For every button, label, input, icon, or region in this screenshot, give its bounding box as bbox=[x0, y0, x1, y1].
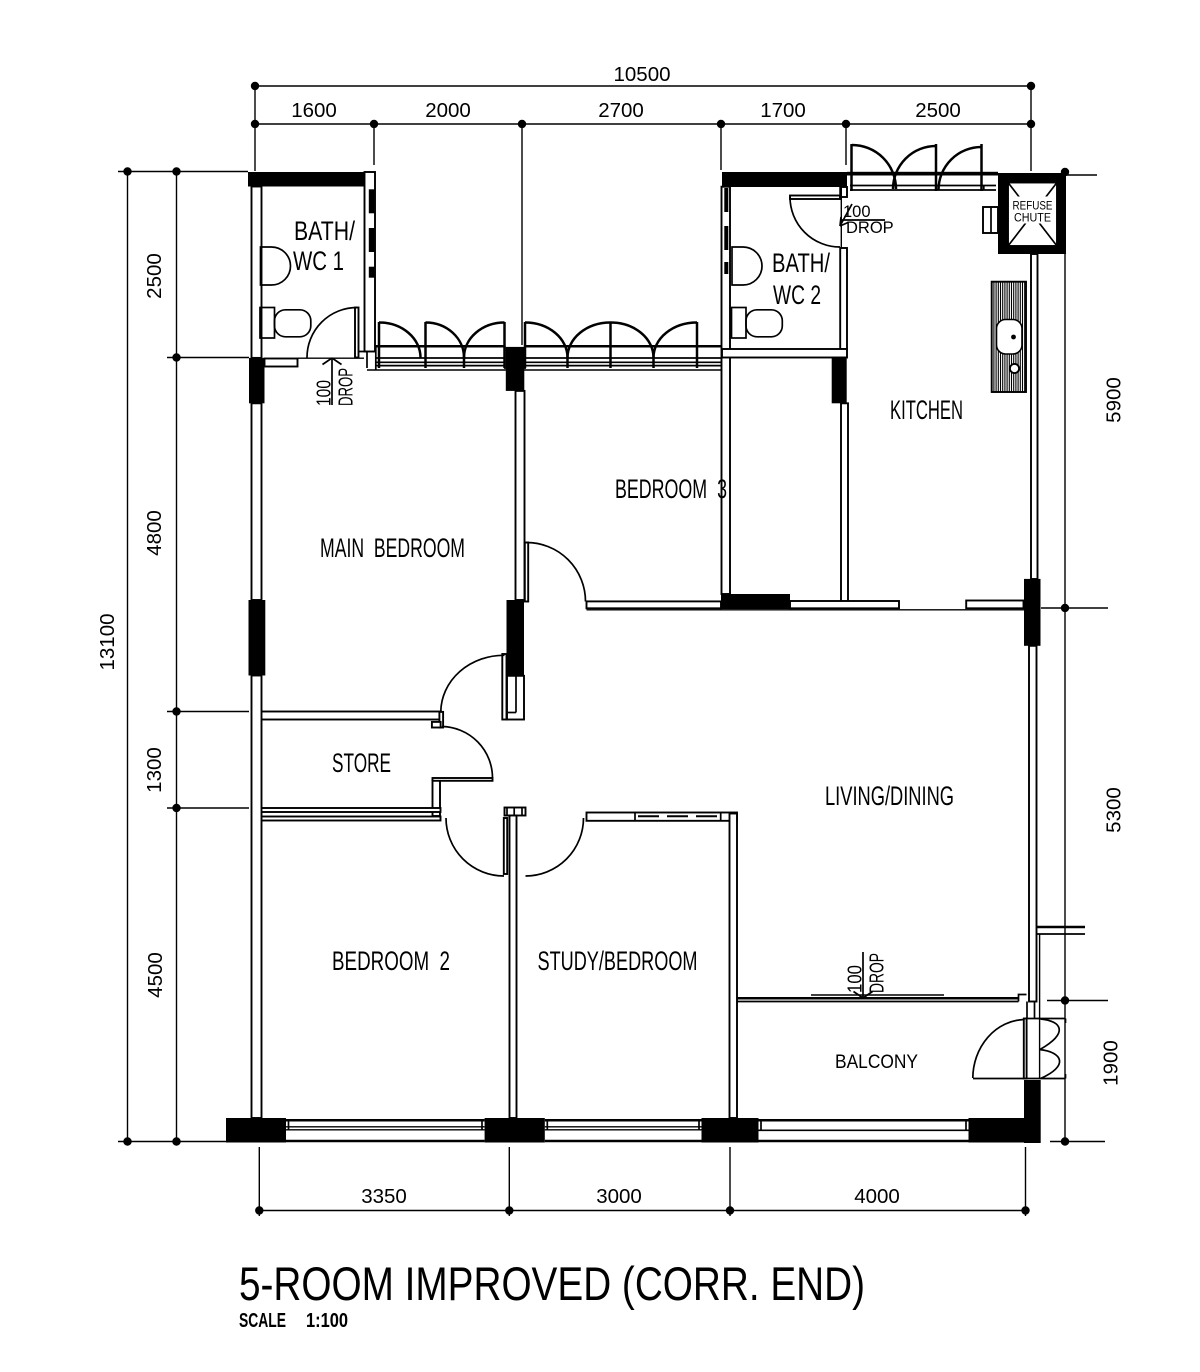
svg-text:2500: 2500 bbox=[143, 253, 166, 299]
svg-text:STORE: STORE bbox=[332, 748, 391, 778]
svg-text:STUDY/BEDROOM: STUDY/BEDROOM bbox=[538, 946, 698, 976]
svg-text:10500: 10500 bbox=[613, 63, 670, 86]
svg-text:DROP: DROP bbox=[846, 219, 894, 237]
svg-text:BALCONY: BALCONY bbox=[835, 1052, 918, 1073]
svg-text:100: 100 bbox=[314, 380, 336, 406]
svg-text:3350: 3350 bbox=[361, 1185, 407, 1208]
svg-text:SCALE: SCALE bbox=[239, 1310, 286, 1332]
svg-text:5900: 5900 bbox=[1103, 377, 1126, 423]
svg-text:DROP: DROP bbox=[867, 953, 889, 993]
svg-text:4000: 4000 bbox=[854, 1185, 900, 1208]
svg-text:1300: 1300 bbox=[143, 747, 166, 793]
svg-text:100: 100 bbox=[845, 965, 867, 993]
svg-text:MAIN BEDROOM: MAIN BEDROOM bbox=[320, 533, 465, 563]
svg-text:5300: 5300 bbox=[1103, 787, 1126, 833]
svg-text:WC 1: WC 1 bbox=[293, 246, 344, 276]
svg-text:1600: 1600 bbox=[291, 99, 337, 122]
svg-text:KITCHEN: KITCHEN bbox=[890, 395, 963, 425]
svg-text:2700: 2700 bbox=[598, 99, 644, 122]
svg-text:13100: 13100 bbox=[96, 613, 119, 670]
svg-text:CHUTE: CHUTE bbox=[1014, 213, 1051, 225]
svg-text:DROP: DROP bbox=[336, 368, 358, 406]
svg-text:1900: 1900 bbox=[1100, 1040, 1123, 1086]
svg-text:BEDROOM 2: BEDROOM 2 bbox=[332, 946, 450, 976]
svg-text:LIVING/DINING: LIVING/DINING bbox=[825, 781, 954, 811]
svg-text:REFUSE: REFUSE bbox=[1013, 201, 1053, 213]
svg-text:1:100: 1:100 bbox=[306, 1310, 348, 1332]
svg-text:WC 2: WC 2 bbox=[773, 280, 821, 310]
svg-text:5-ROOM IMPROVED (CORR. END): 5-ROOM IMPROVED (CORR. END) bbox=[239, 1257, 865, 1310]
svg-text:4500: 4500 bbox=[144, 952, 167, 998]
svg-text:3000: 3000 bbox=[596, 1185, 642, 1208]
svg-text:4800: 4800 bbox=[143, 510, 166, 556]
svg-text:BATH/: BATH/ bbox=[294, 216, 355, 246]
svg-text:BEDROOM 3: BEDROOM 3 bbox=[615, 474, 727, 504]
svg-text:2000: 2000 bbox=[425, 99, 471, 122]
svg-text:BATH/: BATH/ bbox=[772, 248, 830, 278]
svg-text:2500: 2500 bbox=[915, 99, 961, 122]
svg-text:1700: 1700 bbox=[760, 99, 806, 122]
